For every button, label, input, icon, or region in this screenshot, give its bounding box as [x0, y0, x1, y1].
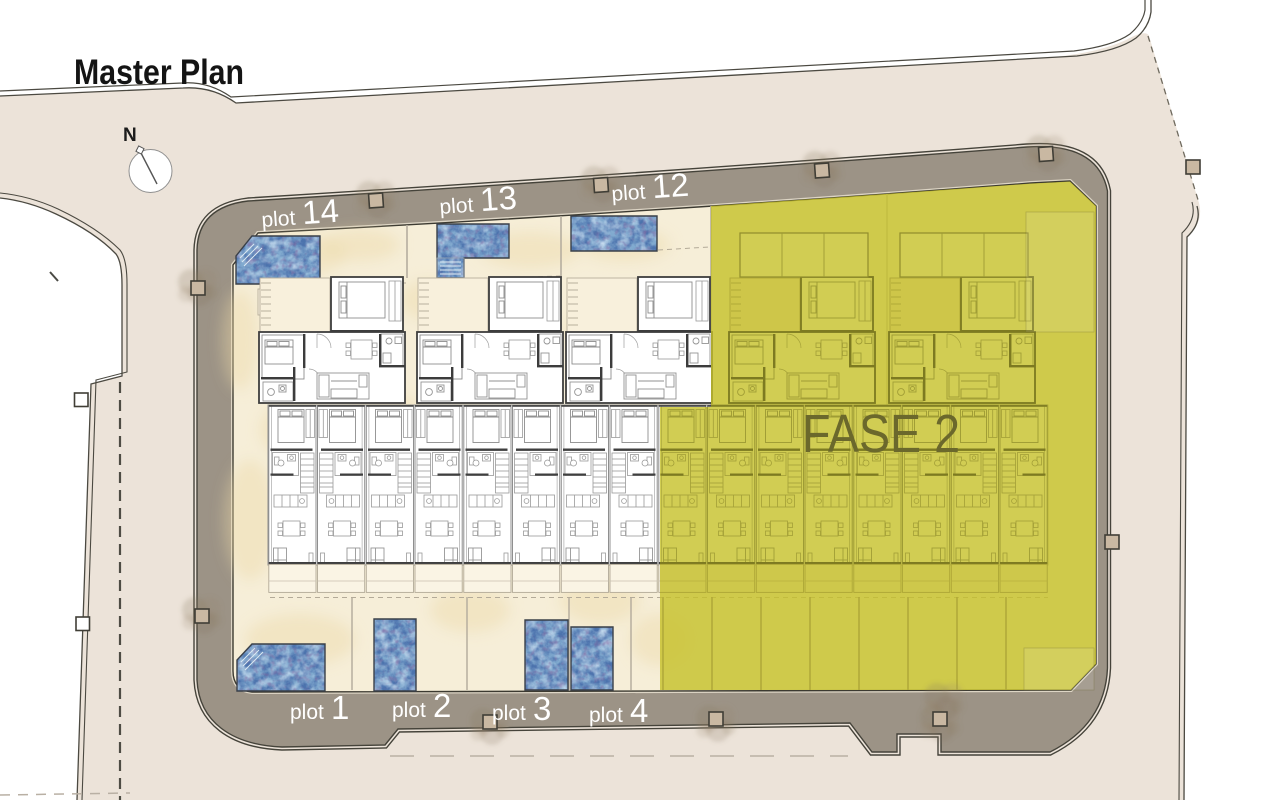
- svg-text:14: 14: [301, 192, 340, 231]
- svg-text:3: 3: [533, 690, 551, 727]
- svg-text:1: 1: [331, 689, 349, 726]
- svg-text:12: 12: [651, 166, 690, 205]
- svg-text:13: 13: [479, 179, 518, 218]
- svg-text:FASE 2: FASE 2: [802, 404, 960, 464]
- svg-text:plot: plot: [261, 207, 297, 232]
- svg-text:Master Plan: Master Plan: [74, 53, 244, 92]
- svg-text:4: 4: [630, 692, 648, 729]
- svg-text:plot: plot: [492, 702, 526, 725]
- svg-text:plot: plot: [589, 704, 623, 727]
- svg-text:2: 2: [433, 687, 451, 724]
- svg-text:plot: plot: [611, 181, 647, 206]
- svg-text:N: N: [123, 125, 137, 146]
- svg-text:plot: plot: [439, 194, 475, 219]
- svg-text:plot: plot: [290, 701, 324, 724]
- svg-text:plot: plot: [392, 699, 426, 722]
